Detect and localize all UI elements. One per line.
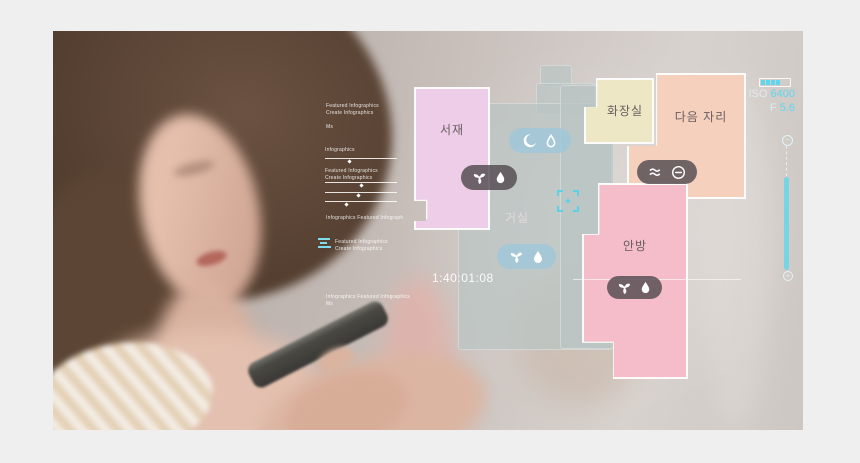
pill-living[interactable] (497, 244, 556, 269)
room-label-master-bedroom: 안방 (582, 237, 688, 254)
slider-plus-handle[interactable]: + (783, 271, 793, 281)
pill-master-bedroom[interactable] (607, 276, 662, 299)
room-label-living: 거실 (505, 209, 529, 226)
water-drop-icon (543, 133, 559, 149)
battery-segment (771, 80, 775, 85)
hud-slider-heading: Infographics (325, 147, 355, 154)
air-wave-icon (647, 163, 665, 181)
water-drop-icon (493, 170, 508, 185)
aperture-value: 5.6 (780, 102, 795, 114)
hud-slider-caption: Featured Infographics Create Infographic… (325, 168, 378, 181)
pill-next-seat[interactable] (637, 160, 697, 184)
hud-intro-text: Featured Infographics Create Infographic… (326, 103, 379, 131)
focus-bracket-icon[interactable] (557, 190, 579, 212)
moon-icon (521, 132, 538, 149)
battery-segment (776, 80, 780, 85)
timecode: 1:40:01:08 (432, 271, 494, 285)
photo-background: 거실 서재 화장실 다음 자리 안방 (53, 31, 803, 430)
battery-segment (766, 80, 770, 85)
video-frame: 거실 서재 화장실 다음 자리 안방 (0, 0, 860, 463)
pill-living-upper[interactable] (509, 128, 571, 153)
water-drop-icon (530, 249, 546, 265)
battery-segment (761, 80, 765, 85)
hud-slider-1[interactable] (325, 158, 397, 159)
room-label-bathroom: 화장실 (596, 102, 654, 119)
hud-eq-caption: Featured Infographics Create Infographic… (335, 239, 388, 252)
equalizer-icon[interactable] (318, 238, 332, 252)
fan-icon (471, 169, 488, 186)
iso-value: 6400 (771, 88, 795, 100)
fan-icon (508, 248, 525, 265)
water-drop-icon (638, 280, 653, 295)
hud-slider-4[interactable] (325, 201, 397, 202)
room-label-study: 서재 (414, 121, 490, 138)
minus-circle-icon (670, 164, 687, 181)
pill-study[interactable] (461, 165, 517, 190)
hud-note: Infographics Featured Infograph (326, 215, 403, 222)
slider-fill-bar[interactable] (784, 177, 789, 270)
iso-readout: ISO 6400 (733, 88, 795, 100)
fan-icon (616, 279, 633, 296)
hud-footer-text: Infographics Featured Infographics Ms (326, 294, 410, 307)
aperture-label: F (770, 102, 777, 114)
slider-track-dashed[interactable] (786, 146, 787, 176)
iso-label: ISO (749, 88, 768, 100)
hud-slider-3[interactable] (325, 192, 397, 193)
battery-indicator (759, 78, 791, 87)
aperture-readout: F 5.6 (733, 102, 795, 114)
slider-minus-handle[interactable]: − (782, 135, 793, 146)
